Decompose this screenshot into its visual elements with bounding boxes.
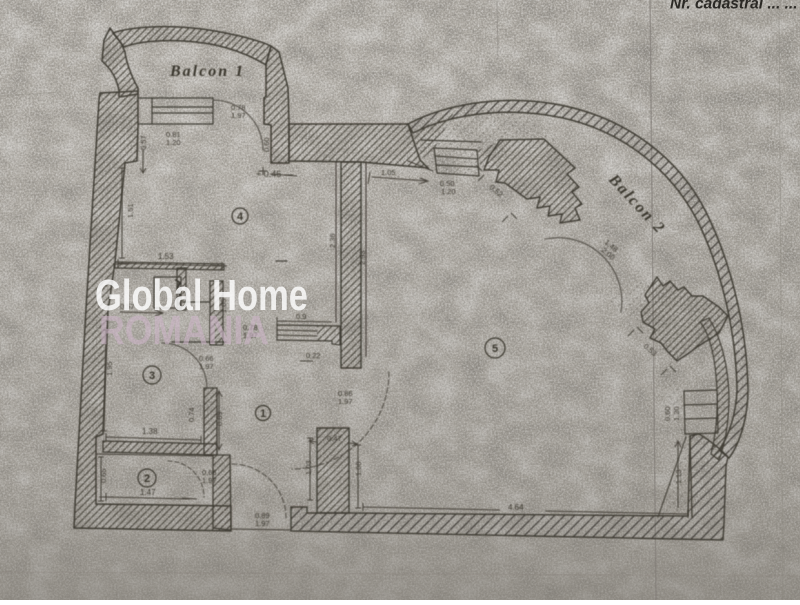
svg-text:0.57: 0.57 [139,135,148,150]
svg-text:4: 4 [237,211,244,223]
svg-text:1.20: 1.20 [672,406,681,421]
svg-text:1.97: 1.97 [202,476,217,485]
svg-text:1.20: 1.20 [441,187,456,196]
svg-text:1.97: 1.97 [231,111,246,120]
svg-text:1.47: 1.47 [140,488,156,497]
svg-text:1.38: 1.38 [142,427,158,436]
svg-text:4.64: 4.64 [508,503,524,512]
svg-text:1: 1 [260,408,266,420]
svg-text:1.97: 1.97 [199,362,214,371]
svg-text:2: 2 [144,473,150,485]
svg-text:0.74: 0.74 [187,407,196,422]
svg-text:1.51: 1.51 [126,203,135,218]
svg-text:0.60: 0.60 [262,137,271,152]
svg-text:1.03: 1.03 [304,460,313,475]
svg-text:2.36: 2.36 [328,233,337,248]
svg-text:5: 5 [492,343,498,355]
svg-text:1.20: 1.20 [166,138,181,147]
svg-text:0.47: 0.47 [327,434,342,443]
svg-text:1.05: 1.05 [381,168,396,177]
svg-text:ROMANIA: ROMANIA [99,307,269,353]
svg-text:Nr. cadastral ... ... ..: Nr. cadastral ... ... .. [670,0,800,13]
svg-text:1.95: 1.95 [105,361,114,376]
svg-text:1.97: 1.97 [338,397,353,406]
svg-text:0.22: 0.22 [306,351,321,360]
svg-text:0.65: 0.65 [99,468,108,483]
svg-text:2.93: 2.93 [358,250,367,265]
svg-text:0.60: 0.60 [663,406,672,421]
svg-text:Balcon 1: Balcon 1 [169,63,245,80]
svg-text:3: 3 [149,370,155,382]
svg-text:1.53: 1.53 [158,252,174,261]
svg-text:1.97: 1.97 [255,519,270,528]
